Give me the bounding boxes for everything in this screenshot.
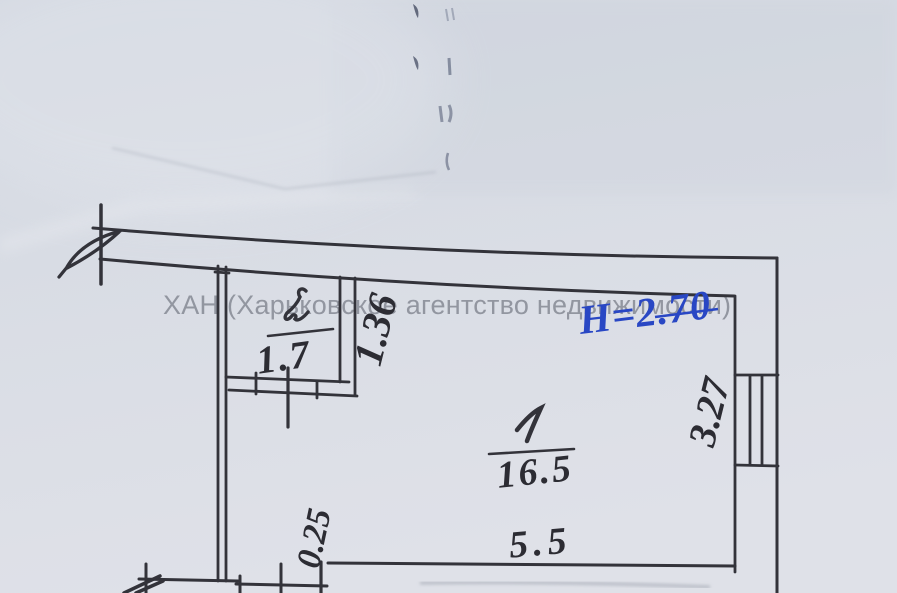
svg-text:1.7: 1.7	[254, 332, 314, 382]
svg-text:5.5: 5.5	[507, 519, 573, 566]
svg-text:16.5: 16.5	[495, 447, 575, 497]
